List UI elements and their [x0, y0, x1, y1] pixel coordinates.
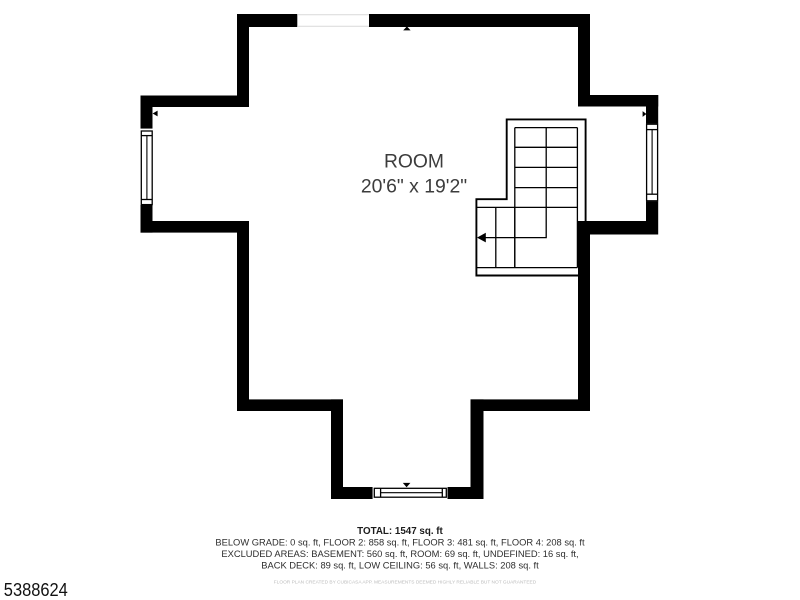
svg-text:FLOOR PLAN CREATED BY CUBICASA: FLOOR PLAN CREATED BY CUBICASA APP. MEAS…	[274, 580, 537, 586]
svg-text:5388624: 5388624	[4, 579, 68, 600]
svg-text:BACK DECK: 89 sq. ft, LOW CEIL: BACK DECK: 89 sq. ft, LOW CEILING: 56 sq…	[261, 561, 539, 571]
svg-text:EXCLUDED AREAS: BASEMENT: 560: EXCLUDED AREAS: BASEMENT: 560 sq. ft, RO…	[221, 549, 578, 559]
svg-text:ROOM: ROOM	[384, 152, 444, 173]
svg-text:BELOW GRADE: 0 sq. ft, FLOOR 2: BELOW GRADE: 0 sq. ft, FLOOR 2: 858 sq. …	[215, 537, 585, 547]
svg-text:20'6" x 19'2": 20'6" x 19'2"	[361, 175, 467, 197]
svg-text:TOTAL: 1547 sq. ft: TOTAL: 1547 sq. ft	[357, 526, 443, 537]
